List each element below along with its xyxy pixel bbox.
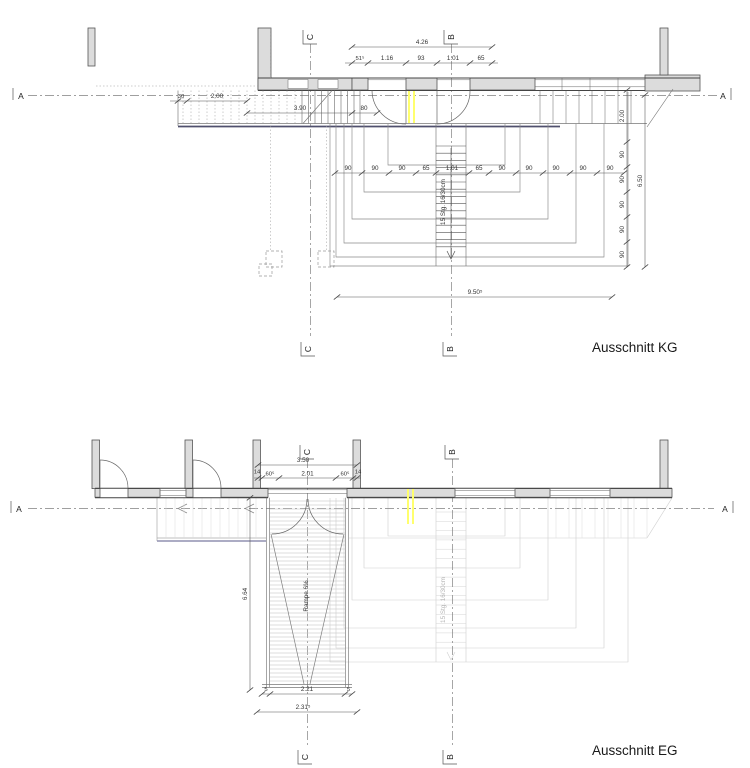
eg-wall-seg <box>128 489 160 498</box>
axis-label-a-left: A <box>18 91 24 101</box>
eg-wall-stub <box>660 440 668 489</box>
eg-wall-seg <box>186 489 193 498</box>
eg-doors <box>100 460 221 488</box>
kg-stair: 15 Stg. 16/30cm <box>436 124 466 266</box>
kg-axis-labels: A A C C B B <box>13 30 731 356</box>
axis-label-c-top: C <box>305 34 315 40</box>
eg-wall-stub <box>185 440 193 489</box>
eg-wall-seg <box>515 489 550 498</box>
dim-label: 1.01 <box>447 55 460 62</box>
eg-wall-seg <box>347 489 455 498</box>
dim-label: 90 <box>619 176 626 184</box>
kg-wall-pier <box>470 78 535 90</box>
axis-label-a-right: A <box>722 504 728 514</box>
dim-label: 90 <box>398 165 406 172</box>
eg-faint-arrow <box>447 652 455 660</box>
plan-svg: 15 Stg. 16/30cm 4.26 51⁵ 1.16 93 1.01 65… <box>0 0 750 768</box>
eg-left-walkway <box>157 498 266 541</box>
axis-label-c-top: C <box>302 449 312 455</box>
dim-label: 6.64 <box>242 587 249 600</box>
dim-label: 30 <box>178 94 185 100</box>
axis-label-a-left: A <box>16 504 22 514</box>
eg-wall-seg <box>95 489 100 498</box>
kg-step-outer <box>330 92 628 266</box>
dim-label: 90 <box>619 251 626 259</box>
kg-highlight <box>409 91 414 123</box>
kg-window <box>288 80 308 89</box>
kg-column-footing <box>259 264 272 276</box>
dim-label: 60⁵ <box>341 471 351 478</box>
kg-axis-lines <box>28 44 718 336</box>
eg-left-walkway-joints <box>166 498 256 538</box>
dim-label: 90 <box>579 165 587 172</box>
dim-label: 90 <box>498 165 506 172</box>
dim-label: 3.50 <box>297 457 310 464</box>
dim-label: 51⁵ <box>356 55 366 62</box>
axis-label-b-top: B <box>446 34 456 40</box>
dim-label: 93 <box>417 55 425 62</box>
kg-walls <box>88 28 700 91</box>
dim-label: 90 <box>619 151 626 159</box>
eg-wall-seg <box>610 489 672 498</box>
dim-label: 65 <box>477 55 485 62</box>
kg-wall-left-stub <box>88 28 95 66</box>
dim-label: 90 <box>525 165 533 172</box>
dim-label: 90 <box>606 165 614 172</box>
eg-faint-kg-overlay: 15 Stg. 16/30cm <box>330 498 672 662</box>
kg-wall-corner <box>645 75 700 91</box>
dim-label: 9.50⁵ <box>468 289 483 296</box>
dim-label: 90 <box>619 201 626 209</box>
kg-column <box>318 251 334 267</box>
dim-label: 90 <box>619 226 626 234</box>
eg-axis-lines <box>28 459 714 748</box>
eg-title: Ausschnitt EG <box>592 743 678 758</box>
dim-label: 2.31⁵ <box>296 704 311 711</box>
dim-label: 3.90 <box>294 105 307 112</box>
eg-faint-joints <box>556 498 647 538</box>
dim-label: 14 <box>355 470 362 476</box>
eg-door-swing <box>100 460 128 488</box>
dim-label: 65 <box>475 165 483 172</box>
axis-label-b-bottom: B <box>445 754 455 760</box>
kg-stair-note: 15 Stg. 16/30cm <box>440 179 447 225</box>
eg-wall-stub <box>353 440 361 489</box>
dim-label: 2.01 <box>301 471 314 478</box>
kg-wall-right-stub <box>660 28 668 75</box>
kg-slope-diagonal <box>647 89 673 127</box>
axis-label-b-bottom: B <box>445 346 455 352</box>
eg-walls <box>92 440 672 498</box>
dim-label: 1.16 <box>381 55 394 62</box>
axis-label-a-right: A <box>720 91 726 101</box>
kg-window <box>318 80 338 89</box>
kg-title: Ausschnitt KG <box>592 340 678 355</box>
eg-ramp: Rampe 6% <box>262 498 352 688</box>
kg-step-5 <box>336 124 604 257</box>
kg-column <box>266 251 282 267</box>
eg-faint-stair-note: 15 Stg. 16/30cm <box>440 577 447 623</box>
dim-label: 14 <box>254 470 261 476</box>
kg-wall-pier <box>406 78 437 90</box>
dim-label: 4.26 <box>416 39 429 46</box>
dim-label: 5 <box>347 687 351 693</box>
dim-label: 6.50 <box>637 174 644 187</box>
dim-label: 90 <box>371 165 379 172</box>
dim-label: 90 <box>552 165 560 172</box>
dim-label: 80 <box>360 105 368 112</box>
dim-label: 90 <box>344 165 352 172</box>
dim-label: 60⁵ <box>266 471 276 478</box>
blueprint-canvas: 15 Stg. 16/30cm 4.26 51⁵ 1.16 93 1.01 65… <box>0 0 750 768</box>
eg-ramp-note: Rampe 6% <box>303 580 310 612</box>
dim-label: 5 <box>264 687 268 693</box>
axis-label-c-bottom: C <box>303 346 313 352</box>
eg-drawing: 15 Stg. 16/30cm <box>11 440 733 764</box>
kg-step-1 <box>388 124 505 165</box>
eg-wall-seg <box>221 489 268 498</box>
dim-label: 2.00 <box>619 109 626 122</box>
axis-label-b-top: B <box>447 449 457 455</box>
kg-columns <box>259 251 334 276</box>
eg-wall-stub <box>92 440 100 489</box>
dim-label: 2.00 <box>211 93 224 100</box>
eg-door-swing <box>193 460 221 488</box>
kg-drawing: 15 Stg. 16/30cm 4.26 51⁵ 1.16 93 1.01 65… <box>13 28 731 356</box>
dim-label: 2.21 <box>301 686 314 693</box>
kg-wall-pier <box>352 78 368 90</box>
dim-label: 65 <box>422 165 430 172</box>
axis-label-c-bottom: C <box>300 754 310 760</box>
dim-label: 1.01 <box>446 165 459 172</box>
